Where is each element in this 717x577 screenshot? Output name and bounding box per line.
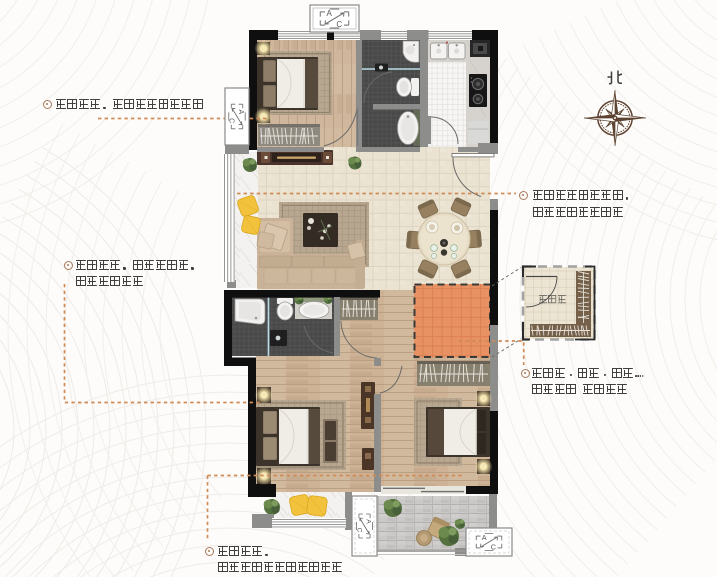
svg-text:A: A — [482, 533, 487, 542]
svg-text:A: A — [237, 110, 244, 115]
svg-text:C: C — [491, 543, 496, 552]
svg-text:C: C — [355, 528, 362, 533]
svg-text:C: C — [228, 118, 235, 123]
svg-text:A: A — [326, 9, 332, 18]
svg-text:A: A — [365, 519, 372, 524]
svg-text:C: C — [336, 20, 342, 29]
